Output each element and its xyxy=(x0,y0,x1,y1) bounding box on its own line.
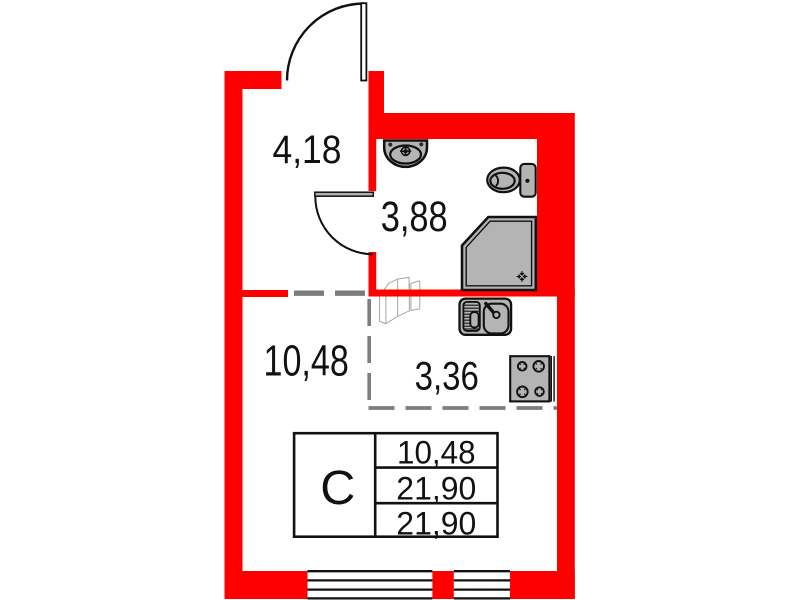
svg-text:10,48: 10,48 xyxy=(397,435,476,471)
svg-text:C: C xyxy=(320,461,355,515)
svg-text:21,90: 21,90 xyxy=(396,471,476,507)
svg-text:21,90: 21,90 xyxy=(396,505,476,541)
svg-text:10,48: 10,48 xyxy=(264,338,349,386)
svg-text:3,88: 3,88 xyxy=(381,194,448,241)
svg-text:4,18: 4,18 xyxy=(273,128,342,172)
svg-text:3,36: 3,36 xyxy=(415,354,479,398)
